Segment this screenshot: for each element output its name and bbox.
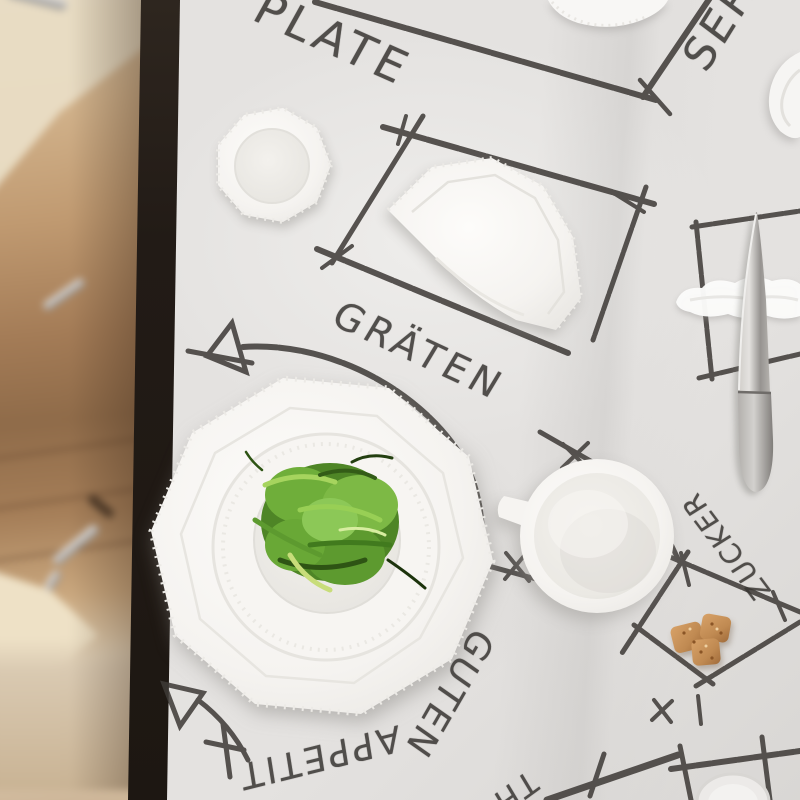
chalk-line — [671, 751, 800, 769]
butter-smear — [676, 277, 800, 319]
napkin — [769, 52, 800, 138]
chalk-line — [692, 211, 800, 227]
knife-handle — [738, 392, 773, 492]
chalk-arrowhead — [164, 684, 203, 726]
top-plate-sliver — [548, 0, 668, 27]
bone-dish — [388, 158, 581, 330]
scene-art — [0, 0, 800, 800]
photo-scene: PLATE SER GRÄTEN GUTEN APPETIT ZUCKER TH… — [0, 0, 800, 800]
knife — [738, 212, 773, 492]
drinking-glass — [697, 774, 769, 800]
coffee-cup — [498, 459, 674, 613]
knife-bolster — [738, 392, 771, 393]
side-plate — [218, 108, 331, 222]
chalk-line — [547, 755, 678, 800]
chalk-tick — [590, 754, 604, 796]
chalk-line — [680, 746, 691, 800]
chalk-tick — [698, 696, 701, 724]
